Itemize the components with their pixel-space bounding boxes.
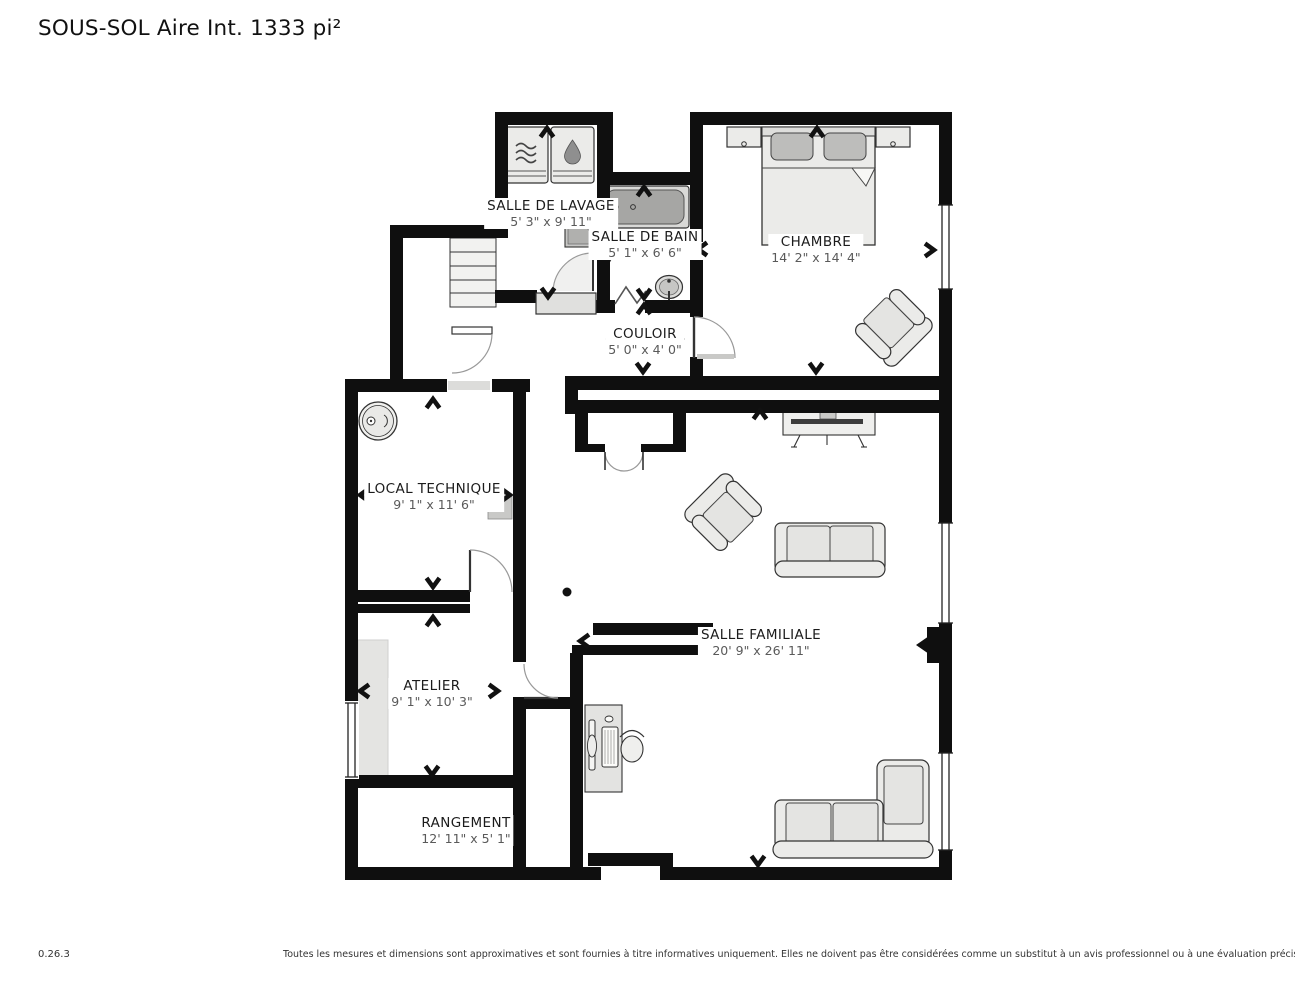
desk-icon <box>585 705 644 792</box>
window-icon <box>937 753 954 850</box>
room-dimensions: 5' 1" x 6' 6" <box>592 245 699 260</box>
room-label-atelier: ATELIER 9' 1" x 10' 3" <box>388 678 475 709</box>
door-lavage <box>553 253 593 291</box>
room-label-local-technique: LOCAL TECHNIQUE 9' 1" x 11' 6" <box>364 481 504 512</box>
room-dimensions: 9' 1" x 10' 3" <box>391 694 472 709</box>
chimney-icon <box>927 627 941 663</box>
door-vestibule <box>452 327 492 373</box>
room-name: SALLE FAMILIALE <box>701 627 821 643</box>
room-dimensions: 14' 2" x 14' 4" <box>771 250 860 265</box>
room-label-chambre: CHAMBRE 14' 2" x 14' 4" <box>768 234 863 265</box>
room-name: SALLE DE BAIN <box>592 229 699 245</box>
page-title: SOUS-SOL Aire Int. 1333 pi² <box>38 16 341 41</box>
window-icon <box>937 523 954 623</box>
nightstand-icon <box>727 127 761 147</box>
door-atelier <box>524 664 558 698</box>
office-chair-icon <box>620 731 644 763</box>
tv-icon <box>791 419 863 424</box>
room-label-salle-de-bain: SALLE DE BAIN 5' 1" x 6' 6" <box>589 229 702 260</box>
armchair-icon <box>682 471 765 554</box>
room-dimensions: 5' 3" x 9' 11" <box>487 214 615 229</box>
room-dimensions: 12' 11" x 5' 1" <box>421 831 510 846</box>
disclaimer-text: Toutes les mesures et dimensions sont ap… <box>283 949 1295 960</box>
door-local-technique <box>470 550 512 592</box>
tv-console-icon <box>783 408 875 447</box>
room-name: LOCAL TECHNIQUE <box>367 481 501 497</box>
window-icon <box>344 701 359 779</box>
room-name: ATELIER <box>391 678 472 694</box>
dryer-icon <box>551 127 594 183</box>
room-name: COULOIR <box>608 326 681 342</box>
double-bed-icon <box>762 127 875 245</box>
door-closet-double <box>605 452 643 471</box>
room-label-couloir: COULOIR 5' 0" x 4' 0" <box>605 326 684 357</box>
room-dimensions: 20' 9" x 26' 11" <box>701 643 821 658</box>
floor-plan-drawing <box>0 0 1295 1000</box>
room-label-salle-de-lavage: SALLE DE LAVAGE 5' 3" x 9' 11" <box>484 198 618 229</box>
door-chambre <box>694 317 735 358</box>
room-dimensions: 5' 0" x 4' 0" <box>608 342 681 357</box>
nightstand-icon <box>876 127 910 147</box>
doorway-threshold <box>448 381 490 390</box>
water-heater-icon <box>359 402 397 440</box>
workbench-icon <box>358 640 388 777</box>
window-icon <box>937 205 954 289</box>
support-post-icon <box>563 588 572 597</box>
room-name: RANGEMENT <box>421 815 510 831</box>
room-name: CHAMBRE <box>771 234 860 250</box>
room-label-salle-familiale: SALLE FAMILIALE 20' 9" x 26' 11" <box>698 627 824 658</box>
loveseat-icon <box>775 523 885 577</box>
room-dimensions: 9' 1" x 11' 6" <box>367 497 501 512</box>
staircase-icon <box>450 238 496 307</box>
floor-plan-page: SOUS-SOL Aire Int. 1333 pi² SALLE DE LAV… <box>0 0 1295 1000</box>
doorway-threshold <box>697 354 734 359</box>
version-label: 0.26.3 <box>38 949 70 960</box>
bathroom-sink-icon <box>656 276 683 304</box>
room-label-rangement: RANGEMENT 12' 11" x 5' 1" <box>418 815 513 846</box>
sectional-sofa-icon <box>773 760 933 858</box>
armchair-icon <box>853 287 936 370</box>
room-name: SALLE DE LAVAGE <box>487 198 615 214</box>
